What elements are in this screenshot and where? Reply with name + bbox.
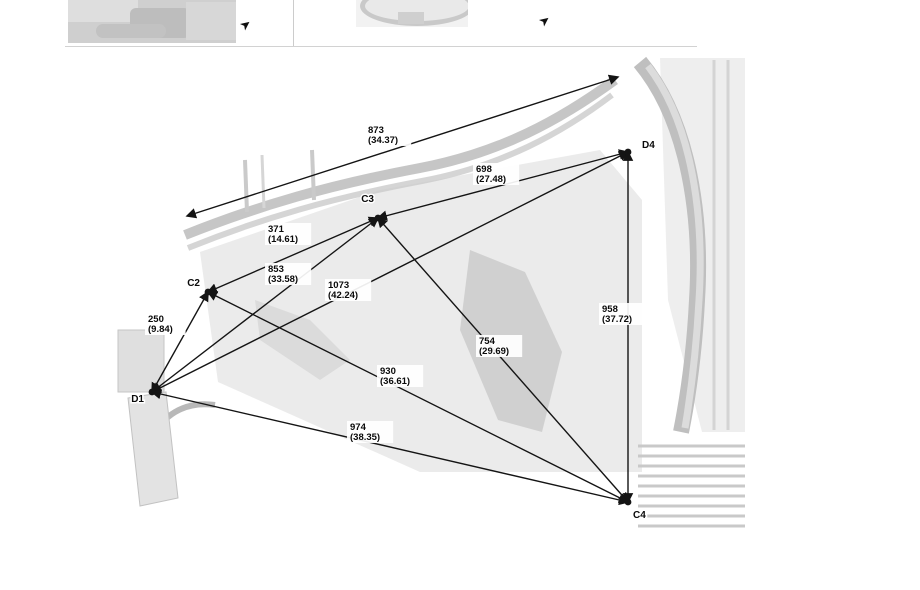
point-label: C2 xyxy=(187,278,200,289)
point-marker xyxy=(625,149,632,156)
measurement-inches: (34.37) xyxy=(368,135,398,146)
point-marker xyxy=(625,499,632,506)
measurement-label: 250(9.84) xyxy=(145,313,186,335)
point-label: D1 xyxy=(131,394,144,405)
point-marker xyxy=(205,289,212,296)
measurement-inches: (29.69) xyxy=(479,346,509,357)
body-dimensions-diagram: 873(34.37)698(27.48)371(14.61)853(33.58)… xyxy=(0,0,920,590)
measurement-inches: (27.48) xyxy=(476,174,506,185)
measurement-label: 930(36.61) xyxy=(377,365,423,387)
measurement-label: 853(33.58) xyxy=(265,263,311,285)
measurement-inches: (42.24) xyxy=(328,290,358,301)
measurement-label: 1073(42.24) xyxy=(325,279,371,301)
measurement-inches: (9.84) xyxy=(148,324,173,335)
vehicle-structure-illustration xyxy=(118,58,745,526)
point-label: C3 xyxy=(361,194,374,205)
measurement-label: 974(38.35) xyxy=(347,421,393,443)
measurement-label: 754(29.69) xyxy=(476,335,522,357)
measurement-label: 371(14.61) xyxy=(265,223,311,245)
measurement-inches: (38.35) xyxy=(350,432,380,443)
measurement-inches: (14.61) xyxy=(268,234,298,245)
measurement-inches: (37.72) xyxy=(602,314,632,325)
manual-page: ➤ ➤ xyxy=(0,0,920,590)
point-marker xyxy=(149,389,156,396)
point-label: D4 xyxy=(642,140,655,151)
point-marker xyxy=(375,215,382,222)
measurement-label: 873(34.37) xyxy=(365,124,411,146)
measurement-inches: (33.58) xyxy=(268,274,298,285)
point-label: C4 xyxy=(633,510,646,521)
measurement-inches: (36.61) xyxy=(380,376,410,387)
measurement-label: 958(37.72) xyxy=(599,303,645,325)
measurement-label: 698(27.48) xyxy=(473,163,519,185)
